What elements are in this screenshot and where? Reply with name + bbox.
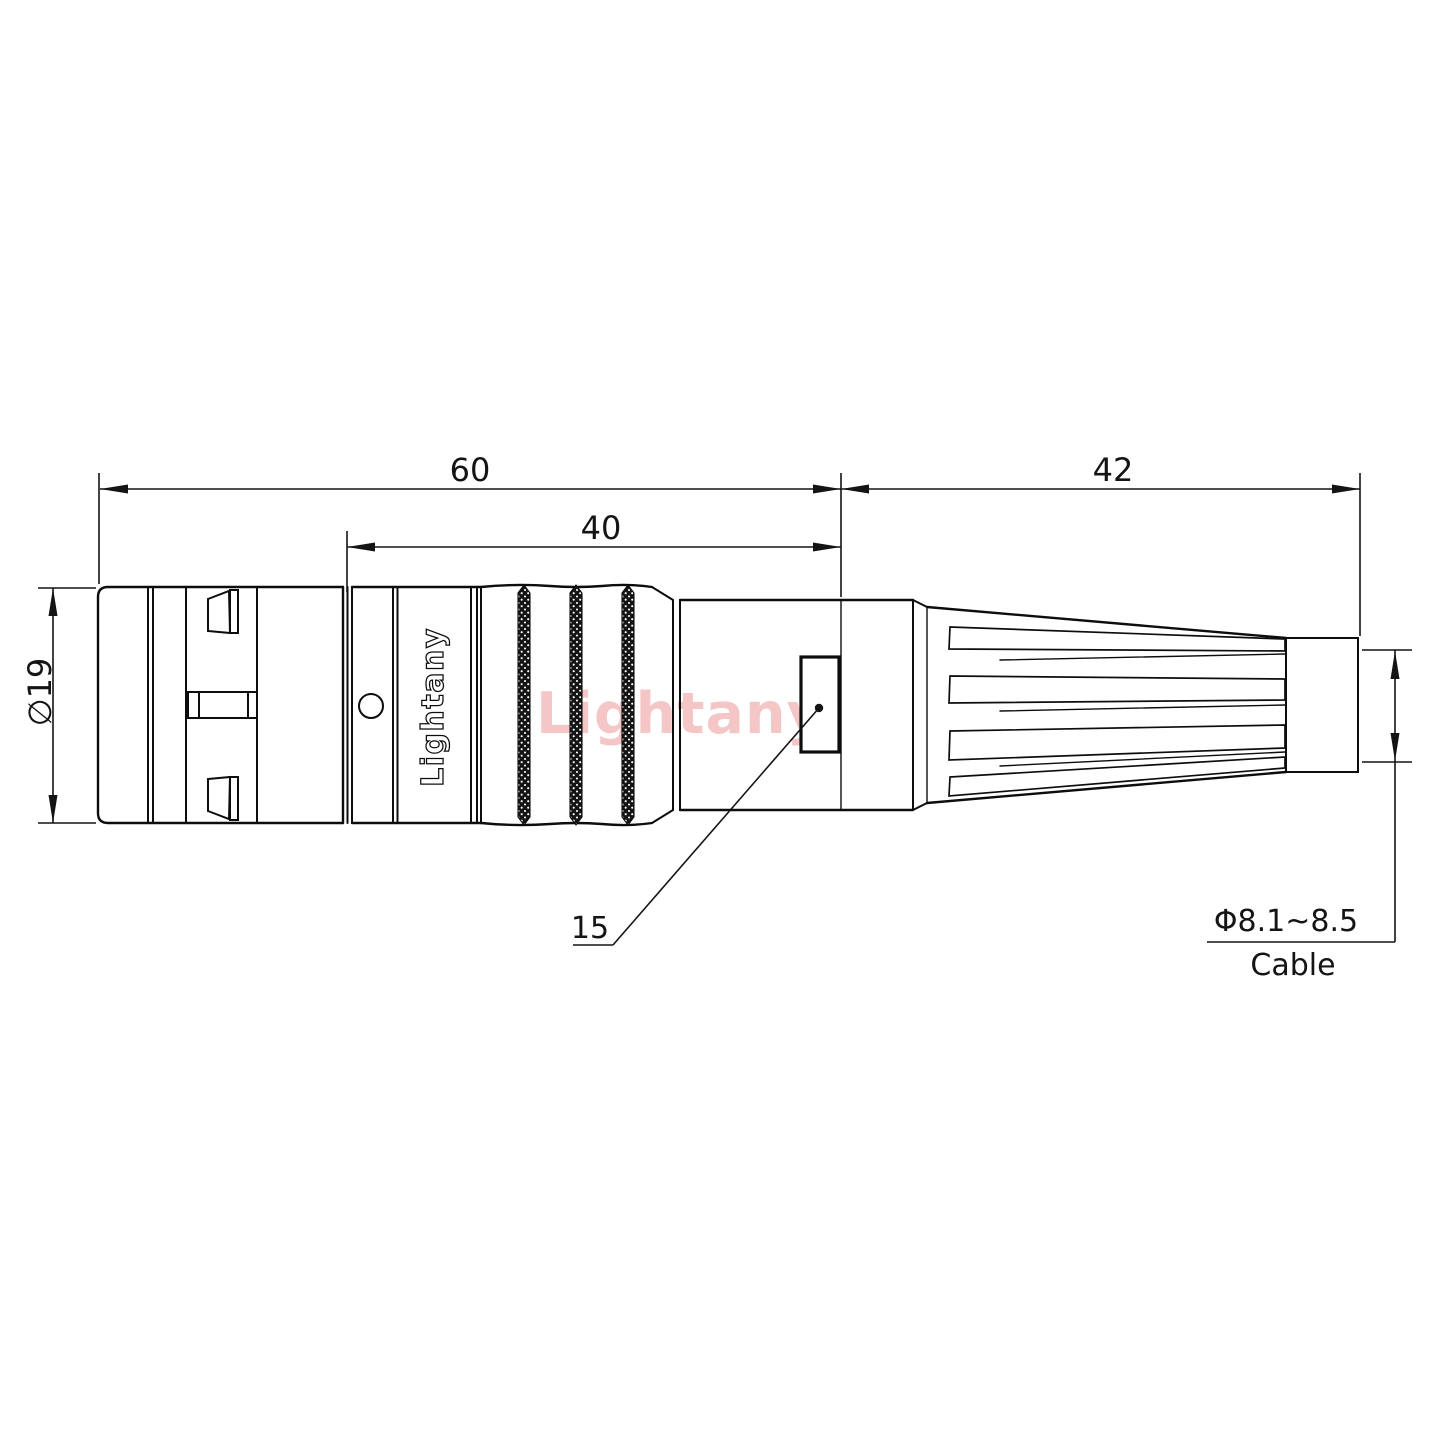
detail-15-label: 15	[571, 911, 609, 946]
knurl-band	[622, 585, 634, 825]
drawing-canvas: Lightany	[0, 0, 1440, 1440]
knurl-band	[570, 585, 582, 825]
cable-end-cap	[1286, 638, 1358, 772]
boot-rib	[949, 676, 1285, 703]
dim-42-label: 42	[1093, 451, 1134, 489]
front-shell	[98, 587, 348, 823]
dia-19-label: ∅19	[21, 658, 59, 727]
logo-section: Lightany	[416, 587, 481, 823]
dim-60-label: 60	[450, 451, 491, 489]
cable-diameter-label: Φ8.1~8.5	[1214, 904, 1358, 939]
knurl-band	[518, 585, 530, 825]
connector-technical-drawing: Lightany	[0, 0, 1440, 1440]
cable-label: Cable	[1250, 948, 1335, 983]
key-slot	[188, 692, 257, 718]
body-logo-text: Lightany	[416, 627, 451, 787]
bayonet-notch-top	[208, 590, 238, 633]
strain-relief-boot	[913, 600, 1358, 810]
boot-rib	[949, 627, 1285, 651]
collar-hole	[359, 694, 383, 718]
bayonet-notch-bottom	[208, 777, 238, 820]
dim-40-label: 40	[581, 509, 622, 547]
